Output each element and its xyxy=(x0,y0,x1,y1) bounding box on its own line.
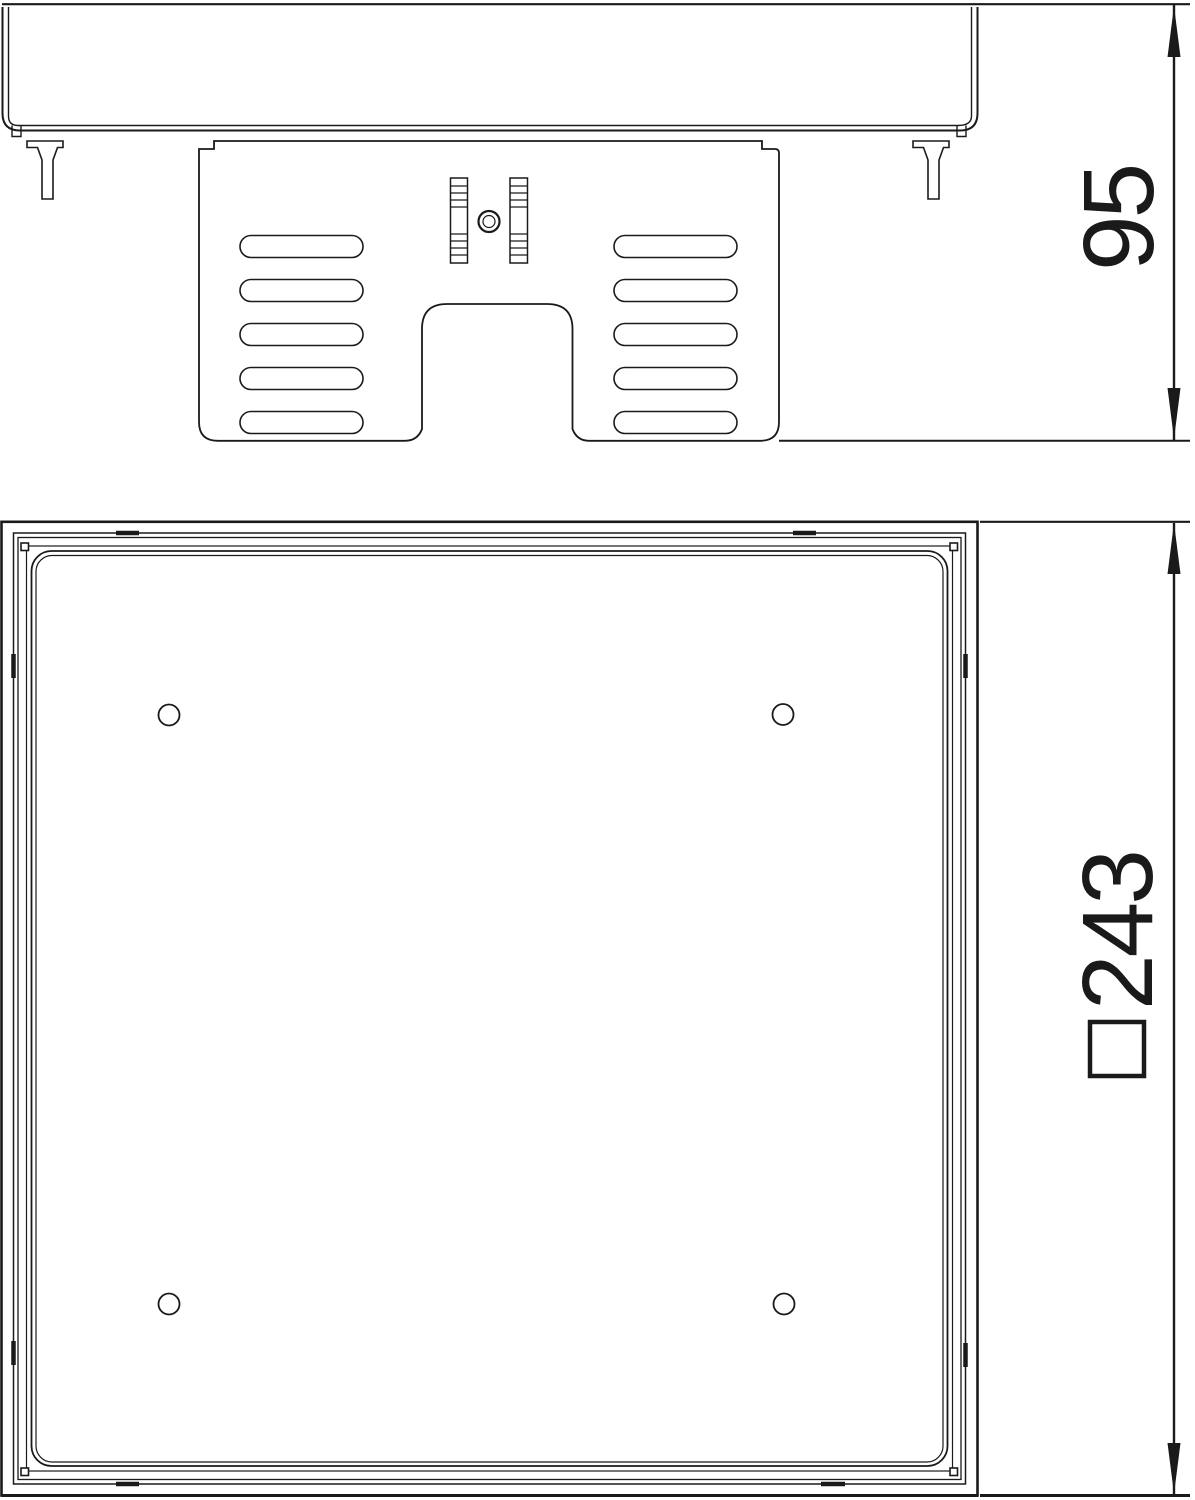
dimension-95-label: 95 xyxy=(1063,166,1175,271)
corner-joint-mark xyxy=(21,543,29,551)
technical-drawing: 95 xyxy=(0,0,1195,1500)
technical-drawing-page: 95 xyxy=(0,0,1195,1500)
corner-joint-mark xyxy=(950,543,958,551)
dimension-243-label: 243 xyxy=(1062,852,1174,1010)
corner-joint-mark xyxy=(21,1468,29,1476)
corner-joint-mark xyxy=(950,1468,958,1476)
